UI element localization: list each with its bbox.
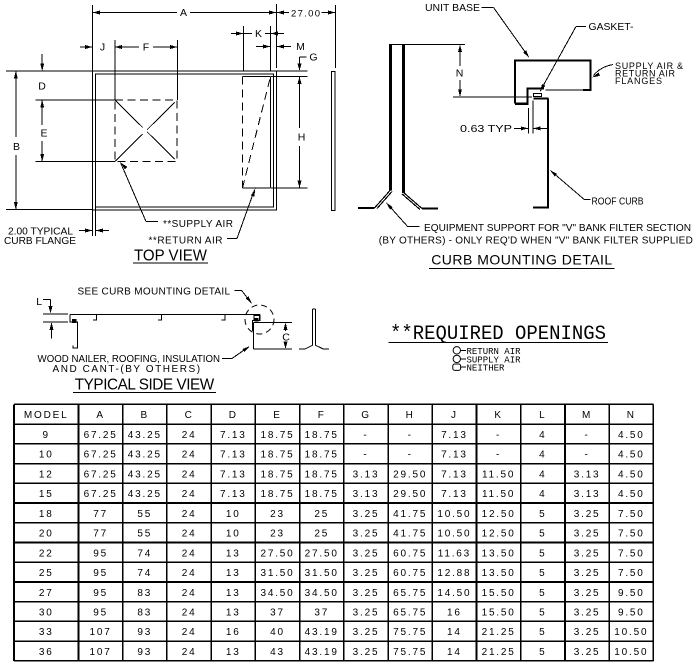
svg-text:7.13: 7.13 bbox=[441, 489, 468, 500]
svg-text:107: 107 bbox=[90, 627, 112, 638]
svg-text:3.25: 3.25 bbox=[353, 509, 380, 520]
svg-text:60.75: 60.75 bbox=[393, 568, 427, 579]
svg-text:21.25: 21.25 bbox=[482, 627, 516, 638]
svg-text:33: 33 bbox=[39, 627, 54, 638]
svg-text:A: A bbox=[96, 410, 104, 421]
svg-text:J: J bbox=[100, 42, 105, 54]
svg-text:27.50: 27.50 bbox=[260, 548, 294, 559]
svg-text:7.13: 7.13 bbox=[220, 450, 247, 461]
svg-text:F: F bbox=[318, 410, 326, 421]
svg-text:36: 36 bbox=[39, 647, 54, 658]
svg-text:24: 24 bbox=[182, 568, 197, 579]
svg-text:F: F bbox=[143, 42, 149, 54]
svg-text:EQUIPMENT SUPPORT FOR "V" BANK: EQUIPMENT SUPPORT FOR "V" BANK FILTER SE… bbox=[424, 223, 691, 234]
svg-text:4: 4 bbox=[539, 489, 546, 500]
svg-text:3.25: 3.25 bbox=[574, 588, 601, 599]
svg-text:A: A bbox=[180, 7, 187, 19]
svg-text:60.75: 60.75 bbox=[393, 548, 427, 559]
svg-text:75.75: 75.75 bbox=[393, 647, 427, 658]
svg-text:67.25: 67.25 bbox=[84, 450, 118, 461]
svg-text:24: 24 bbox=[182, 430, 197, 441]
svg-text:B: B bbox=[13, 141, 20, 153]
svg-text:3.25: 3.25 bbox=[353, 588, 380, 599]
svg-text:95: 95 bbox=[93, 588, 108, 599]
svg-text:43.25: 43.25 bbox=[128, 489, 162, 500]
svg-text:18.75: 18.75 bbox=[260, 430, 294, 441]
svg-text:18.75: 18.75 bbox=[260, 450, 294, 461]
svg-text:34.50: 34.50 bbox=[305, 588, 339, 599]
svg-text:31.50: 31.50 bbox=[260, 568, 294, 579]
svg-text:C: C bbox=[185, 410, 194, 421]
svg-text:J: J bbox=[451, 410, 458, 421]
svg-text:77: 77 bbox=[93, 529, 108, 540]
svg-text:**RETURN AIR: **RETURN AIR bbox=[149, 235, 223, 246]
svg-text:12.88: 12.88 bbox=[437, 568, 471, 579]
svg-text:12: 12 bbox=[39, 469, 54, 480]
svg-text:18.75: 18.75 bbox=[260, 489, 294, 500]
svg-text:3.25: 3.25 bbox=[574, 548, 601, 559]
svg-text:67.25: 67.25 bbox=[84, 469, 118, 480]
svg-text:37: 37 bbox=[314, 608, 329, 619]
svg-text:5: 5 bbox=[539, 608, 546, 619]
svg-text:24: 24 bbox=[182, 647, 197, 658]
svg-text:-: - bbox=[496, 450, 501, 461]
svg-text:7.50: 7.50 bbox=[618, 548, 645, 559]
svg-text:30: 30 bbox=[39, 608, 54, 619]
svg-text:UNIT BASE: UNIT BASE bbox=[425, 3, 480, 14]
svg-text:-: - bbox=[408, 450, 413, 461]
svg-text:5: 5 bbox=[539, 647, 546, 658]
svg-text:43.19: 43.19 bbox=[305, 627, 339, 638]
svg-text:14: 14 bbox=[447, 647, 462, 658]
svg-text:TYPICAL SIDE VIEW: TYPICAL SIDE VIEW bbox=[75, 376, 215, 393]
svg-text:67.25: 67.25 bbox=[84, 430, 118, 441]
svg-text:3.25: 3.25 bbox=[353, 627, 380, 638]
svg-text:K: K bbox=[255, 28, 262, 40]
svg-text:10.50: 10.50 bbox=[614, 647, 648, 658]
svg-text:95: 95 bbox=[93, 548, 108, 559]
svg-text:-: - bbox=[363, 450, 368, 461]
svg-text:3.13: 3.13 bbox=[574, 469, 601, 480]
svg-text:41.75: 41.75 bbox=[393, 529, 427, 540]
svg-text:55: 55 bbox=[137, 509, 152, 520]
svg-text:16: 16 bbox=[226, 627, 241, 638]
svg-text:24: 24 bbox=[182, 509, 197, 520]
svg-text:4.50: 4.50 bbox=[618, 489, 645, 500]
svg-text:24: 24 bbox=[182, 588, 197, 599]
svg-text:4.50: 4.50 bbox=[618, 430, 645, 441]
svg-text:5: 5 bbox=[539, 509, 546, 520]
svg-text:4: 4 bbox=[539, 450, 546, 461]
svg-text:3.25: 3.25 bbox=[574, 627, 601, 638]
svg-text:14: 14 bbox=[447, 627, 462, 638]
svg-text:43.25: 43.25 bbox=[128, 450, 162, 461]
svg-text:4: 4 bbox=[539, 430, 546, 441]
svg-text:40: 40 bbox=[270, 627, 285, 638]
svg-text:74: 74 bbox=[137, 548, 152, 559]
svg-text:G: G bbox=[361, 410, 371, 421]
svg-text:13: 13 bbox=[226, 608, 241, 619]
svg-text:G: G bbox=[309, 52, 317, 64]
svg-text:24: 24 bbox=[182, 529, 197, 540]
svg-text:15.50: 15.50 bbox=[482, 608, 516, 619]
svg-text:43.25: 43.25 bbox=[128, 469, 162, 480]
svg-text:7.13: 7.13 bbox=[220, 469, 247, 480]
svg-text:3.25: 3.25 bbox=[574, 608, 601, 619]
svg-text:25: 25 bbox=[314, 509, 329, 520]
svg-text:9.50: 9.50 bbox=[618, 608, 645, 619]
svg-text:-: - bbox=[585, 450, 590, 461]
svg-text:27.50: 27.50 bbox=[305, 548, 339, 559]
svg-text:4.50: 4.50 bbox=[618, 469, 645, 480]
svg-text:24: 24 bbox=[182, 627, 197, 638]
svg-text:65.75: 65.75 bbox=[393, 588, 427, 599]
svg-text:L: L bbox=[539, 410, 546, 421]
svg-text:4.50: 4.50 bbox=[618, 450, 645, 461]
svg-text:3.25: 3.25 bbox=[353, 529, 380, 540]
svg-text:SEE CURB MOUNTING DETAIL: SEE CURB MOUNTING DETAIL bbox=[78, 287, 231, 298]
svg-text:0.63 TYP: 0.63 TYP bbox=[460, 124, 512, 135]
svg-text:95: 95 bbox=[93, 568, 108, 579]
svg-text:7.13: 7.13 bbox=[441, 469, 468, 480]
svg-text:H: H bbox=[406, 410, 415, 421]
svg-text:3.25: 3.25 bbox=[353, 548, 380, 559]
svg-text:3.25: 3.25 bbox=[574, 568, 601, 579]
svg-text:93: 93 bbox=[137, 647, 152, 658]
svg-text:95: 95 bbox=[93, 608, 108, 619]
svg-text:D: D bbox=[229, 410, 238, 421]
svg-text:25: 25 bbox=[39, 568, 54, 579]
svg-text:D: D bbox=[38, 81, 46, 93]
svg-text:83: 83 bbox=[137, 588, 152, 599]
svg-text:3.13: 3.13 bbox=[574, 489, 601, 500]
svg-text:FLANGES: FLANGES bbox=[615, 76, 662, 86]
svg-text:-: - bbox=[585, 430, 590, 441]
svg-text:3.25: 3.25 bbox=[574, 509, 601, 520]
svg-text:55: 55 bbox=[137, 529, 152, 540]
svg-text:10.50: 10.50 bbox=[437, 529, 471, 540]
svg-text:18.75: 18.75 bbox=[260, 469, 294, 480]
svg-text:7.13: 7.13 bbox=[220, 489, 247, 500]
svg-text:3.25: 3.25 bbox=[574, 647, 601, 658]
svg-text:-: - bbox=[408, 430, 413, 441]
svg-text:31.50: 31.50 bbox=[305, 568, 339, 579]
svg-text:13: 13 bbox=[226, 548, 241, 559]
svg-text:15: 15 bbox=[39, 489, 54, 500]
svg-text:14.50: 14.50 bbox=[437, 588, 471, 599]
svg-text:20: 20 bbox=[39, 529, 54, 540]
svg-text:18.75: 18.75 bbox=[305, 469, 339, 480]
svg-text:H: H bbox=[298, 132, 306, 144]
svg-text:3.25: 3.25 bbox=[353, 568, 380, 579]
svg-text:M: M bbox=[582, 410, 592, 421]
svg-text:18.75: 18.75 bbox=[305, 450, 339, 461]
svg-text:24: 24 bbox=[182, 469, 197, 480]
svg-text:74: 74 bbox=[137, 568, 152, 579]
svg-text:10.50: 10.50 bbox=[437, 509, 471, 520]
svg-text:43.19: 43.19 bbox=[305, 647, 339, 658]
svg-text:3.13: 3.13 bbox=[353, 469, 380, 480]
svg-text:10: 10 bbox=[226, 529, 241, 540]
svg-text:B: B bbox=[141, 410, 149, 421]
svg-text:24: 24 bbox=[182, 608, 197, 619]
svg-text:10.50: 10.50 bbox=[614, 627, 648, 638]
svg-text:5: 5 bbox=[539, 568, 546, 579]
svg-text:18.75: 18.75 bbox=[305, 489, 339, 500]
svg-text:9: 9 bbox=[43, 430, 50, 441]
svg-text:18: 18 bbox=[39, 509, 54, 520]
svg-text:7.13: 7.13 bbox=[441, 430, 468, 441]
svg-text:21.25: 21.25 bbox=[482, 647, 516, 658]
svg-text:23: 23 bbox=[270, 529, 285, 540]
svg-text:75.75: 75.75 bbox=[393, 627, 427, 638]
svg-text:37: 37 bbox=[270, 608, 285, 619]
svg-text:13.50: 13.50 bbox=[482, 568, 516, 579]
svg-text:27.00: 27.00 bbox=[291, 8, 320, 19]
svg-text:3.13: 3.13 bbox=[353, 489, 380, 500]
svg-text:CURB FLANGE: CURB FLANGE bbox=[4, 236, 76, 247]
svg-text:7.13: 7.13 bbox=[220, 430, 247, 441]
svg-text:34.50: 34.50 bbox=[260, 588, 294, 599]
svg-text:27: 27 bbox=[39, 588, 54, 599]
svg-text:10: 10 bbox=[39, 450, 54, 461]
svg-text:CURB MOUNTING DETAIL: CURB MOUNTING DETAIL bbox=[431, 252, 612, 268]
svg-text:13: 13 bbox=[226, 647, 241, 658]
svg-text:43.25: 43.25 bbox=[128, 430, 162, 441]
svg-text:107: 107 bbox=[90, 647, 112, 658]
svg-text:11.63: 11.63 bbox=[438, 548, 471, 559]
svg-text:93: 93 bbox=[137, 627, 152, 638]
svg-text:24: 24 bbox=[182, 548, 197, 559]
svg-text:23: 23 bbox=[270, 509, 285, 520]
svg-text:3.25: 3.25 bbox=[353, 647, 380, 658]
svg-text:22: 22 bbox=[39, 548, 54, 559]
svg-text:13: 13 bbox=[226, 568, 241, 579]
svg-text:3.25: 3.25 bbox=[353, 608, 380, 619]
svg-text:13: 13 bbox=[226, 588, 241, 599]
svg-text:5: 5 bbox=[539, 588, 546, 599]
svg-text:67.25: 67.25 bbox=[84, 489, 118, 500]
svg-text:65.75: 65.75 bbox=[393, 608, 427, 619]
svg-text:16: 16 bbox=[447, 608, 462, 619]
svg-text:25: 25 bbox=[314, 529, 329, 540]
svg-text:18.75: 18.75 bbox=[305, 430, 339, 441]
svg-text:M: M bbox=[296, 41, 305, 53]
svg-text:12.50: 12.50 bbox=[482, 529, 516, 540]
svg-text:TOP VIEW: TOP VIEW bbox=[134, 248, 207, 265]
svg-text:K: K bbox=[494, 410, 502, 421]
svg-text:43: 43 bbox=[270, 647, 285, 658]
svg-text:12.50: 12.50 bbox=[482, 509, 516, 520]
svg-text:(BY OTHERS) - ONLY REQ'D WHEN: (BY OTHERS) - ONLY REQ'D WHEN "V" BANK F… bbox=[379, 236, 693, 247]
svg-text:-: - bbox=[363, 430, 368, 441]
svg-text:10: 10 bbox=[226, 509, 241, 520]
svg-text:E: E bbox=[40, 128, 47, 140]
svg-text:E: E bbox=[273, 410, 281, 421]
svg-text:-: - bbox=[496, 430, 501, 441]
svg-text:15.50: 15.50 bbox=[482, 588, 516, 599]
svg-text:77: 77 bbox=[93, 509, 108, 520]
svg-text:29.50: 29.50 bbox=[393, 489, 427, 500]
svg-text:AND CANT-(BY OTHERS): AND CANT-(BY OTHERS) bbox=[53, 364, 200, 375]
svg-text:GASKET-: GASKET- bbox=[589, 22, 634, 33]
svg-text:7.50: 7.50 bbox=[618, 568, 645, 579]
svg-text:13.50: 13.50 bbox=[482, 548, 516, 559]
svg-text:24: 24 bbox=[182, 489, 197, 500]
svg-text:11.50: 11.50 bbox=[482, 489, 515, 500]
svg-text:4: 4 bbox=[539, 469, 546, 480]
svg-text:5: 5 bbox=[539, 627, 546, 638]
svg-text:24: 24 bbox=[182, 450, 197, 461]
svg-text:29.50: 29.50 bbox=[393, 469, 427, 480]
svg-text:ROOF CURB: ROOF CURB bbox=[592, 197, 644, 208]
svg-text:7.13: 7.13 bbox=[441, 450, 468, 461]
svg-text:41.75: 41.75 bbox=[393, 509, 427, 520]
svg-text:9.50: 9.50 bbox=[618, 588, 645, 599]
svg-text:N: N bbox=[456, 68, 464, 80]
svg-text:7.50: 7.50 bbox=[618, 529, 645, 540]
svg-text:7.50: 7.50 bbox=[618, 509, 645, 520]
svg-text:5: 5 bbox=[539, 548, 546, 559]
svg-text:L: L bbox=[36, 296, 42, 308]
svg-text:5: 5 bbox=[539, 529, 546, 540]
svg-text:3.25: 3.25 bbox=[574, 529, 601, 540]
svg-text:NEITHER: NEITHER bbox=[467, 363, 505, 374]
svg-text:N: N bbox=[627, 410, 636, 421]
svg-text:83: 83 bbox=[137, 608, 152, 619]
svg-text:11.50: 11.50 bbox=[482, 469, 515, 480]
svg-text:**SUPPLY AIR: **SUPPLY AIR bbox=[163, 219, 233, 230]
svg-text:MODEL: MODEL bbox=[24, 410, 69, 421]
